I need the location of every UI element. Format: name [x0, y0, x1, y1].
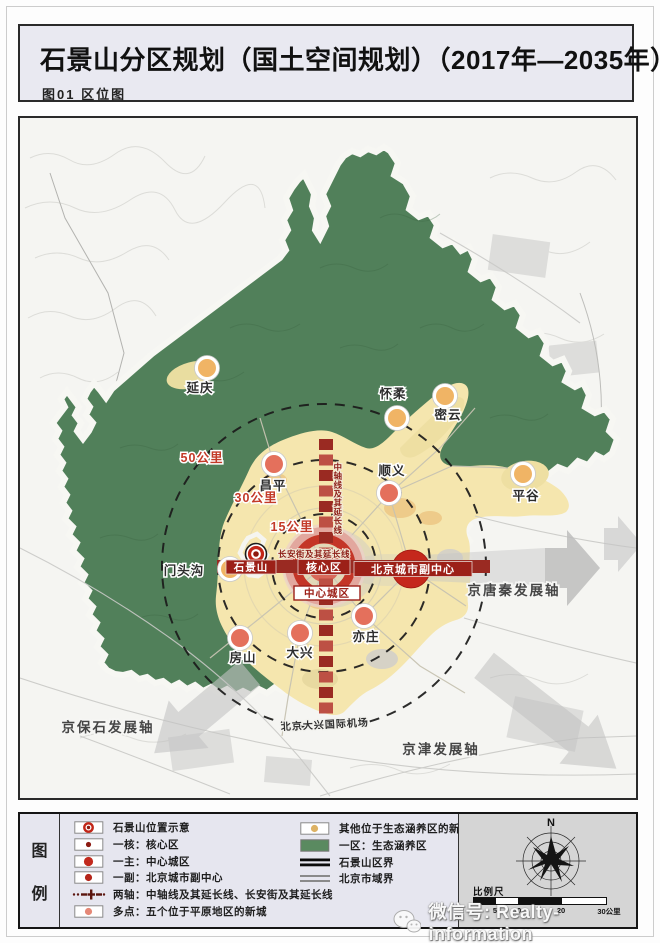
legend-label: 多点：五个位于平原地区的新城: [113, 904, 267, 919]
legend-left-column: 石景山位置示意 一核：核心区 一主：中心城区 一副：北京城市副中心: [72, 821, 333, 918]
town-label-miyun: 密云: [433, 407, 461, 422]
two-axes-icon: [72, 888, 106, 901]
legend-item-eco-newtown: 其他位于生态涵养区的新城: [298, 822, 471, 836]
legend-label: 两轴：中轴线及其延长线、长安街及其延长线: [113, 887, 333, 902]
legend-label: 一区：生态涵养区: [339, 838, 427, 853]
subcenter-box: 北京城市副中心: [354, 562, 472, 577]
legend-label: 一核：核心区: [113, 837, 179, 852]
shijingshan-box: 石景山: [226, 560, 276, 574]
town-label-fangshan: 房山: [229, 650, 256, 665]
town-label-pinggu: 平谷: [512, 488, 539, 503]
legend-item-shijingshan-location: 石景山位置示意: [72, 821, 333, 835]
legend-item-subcenter: 一副：北京城市副中心: [72, 871, 333, 885]
svg-text:核心区: 核心区: [306, 560, 342, 574]
airport: 北京大兴国际机场: [281, 716, 370, 734]
city-boundary-icon: [298, 872, 332, 885]
multi-points-icon: [72, 905, 106, 918]
town-marker-yanqing: [195, 356, 220, 381]
eco-newtown-icon: [298, 822, 332, 835]
ring-15: 15公里: [271, 519, 314, 534]
axis-jingjin: 京津发展轴: [402, 741, 480, 757]
legend-item-city-boundary: 北京市域界: [298, 872, 471, 886]
district-boundary-icon: [298, 856, 332, 869]
town-label-yanqing: 延庆: [185, 380, 213, 395]
town-label-daxing: 大兴: [286, 645, 313, 660]
town-marker-huairou: [385, 406, 410, 431]
eco-zone-icon: [298, 839, 332, 852]
legend-label: 一主：中心城区: [113, 854, 190, 869]
town-marker-daxing: [288, 621, 313, 646]
watermark-text: 微信号: Realty-information: [428, 898, 660, 943]
core-icon: [72, 838, 106, 851]
hebei-admin-line: [50, 173, 124, 383]
town-marker-changping: [262, 452, 287, 477]
east-arrow-small: [604, 516, 636, 572]
svg-text:北京城市副中心: 北京城市副中心: [371, 562, 455, 576]
legend-item-multi-points: 多点：五个位于平原地区的新城: [72, 904, 333, 918]
legend-label: 一副：北京城市副中心: [113, 870, 223, 885]
axis-jingbaoshi: 京保石发展轴: [62, 719, 155, 735]
town-marker-miyun: [433, 384, 458, 409]
ring-50: 50公里: [181, 450, 224, 465]
wechat-icon: [392, 909, 421, 935]
location-map: 延庆怀柔密云平谷门头沟昌平顺义房山大兴亦庄15公里30公里50公里京保石发展轴京…: [20, 118, 636, 798]
core-area-box: 核心区: [298, 560, 350, 575]
central-city-box: 中心城区: [294, 586, 360, 600]
svg-text:石景山: 石景山: [233, 561, 269, 574]
watermark: 微信号: Realty-information: [392, 898, 660, 943]
central-city-icon: [72, 855, 106, 868]
map-box: 延庆怀柔密云平谷门头沟昌平顺义房山大兴亦庄15公里30公里50公里京保石发展轴京…: [18, 116, 638, 800]
ring-30: 30公里: [235, 490, 278, 505]
town-label-yizhuang: 亦庄: [352, 629, 379, 644]
town-label-shunyi: 顺义: [378, 463, 405, 478]
axis-jingtangqin: 京唐秦发展轴: [468, 582, 561, 598]
town-marker-yizhuang: [352, 604, 377, 629]
legend-title-bottom: 例: [31, 880, 47, 904]
legend-title-top: 图: [31, 837, 47, 861]
legend-label: 石景山区界: [339, 855, 394, 870]
town-marker-fangshan: [228, 626, 253, 651]
zhongzhou-axis: 线: [333, 525, 342, 535]
subcenter-icon: [72, 871, 106, 884]
legend-item-core: 一核：核心区: [72, 838, 333, 852]
legend-item-two-axes: 两轴：中轴线及其延长线、长安街及其延长线: [72, 888, 333, 902]
town-label-huairou: 怀柔: [379, 386, 406, 401]
town-marker-pinggu: [511, 462, 536, 487]
legend-label: 石景山位置示意: [113, 820, 190, 835]
legend-item-district-boundary: 石景山区界: [298, 855, 471, 869]
compass-north-label: N: [547, 817, 555, 829]
legend-item-eco-zone: 一区：生态涵养区: [298, 839, 471, 853]
legend-sider: 图 例: [20, 814, 60, 927]
scale-label: 比例尺: [473, 884, 505, 898]
svg-text:中心城区: 中心城区: [304, 587, 350, 600]
changan-axis: 长安街及其延长线: [278, 549, 350, 559]
town-label-mentougou: 门头沟: [164, 563, 205, 578]
page-subtitle: 图01 区位图: [42, 84, 632, 103]
legend-label: 北京市域界: [339, 871, 394, 886]
legend-label: 其他位于生态涵养区的新城: [339, 821, 471, 836]
town-marker-shunyi: [377, 481, 402, 506]
legend-item-central-city: 一主：中心城区: [72, 854, 333, 868]
legend-right-column: 其他位于生态涵养区的新城 一区：生态涵养区 石景山区界 北京市域界: [298, 822, 471, 886]
page: 石景山分区规划（国土空间规划）（2017年—2035年） 图01 区位图: [0, 0, 660, 943]
page-title: 石景山分区规划（国土空间规划）（2017年—2035年）: [40, 40, 632, 77]
title-box: 石景山分区规划（国土空间规划）（2017年—2035年） 图01 区位图: [18, 24, 634, 102]
jingjin-arrow: [465, 641, 636, 793]
shijingshan-location-icon: [72, 821, 106, 834]
